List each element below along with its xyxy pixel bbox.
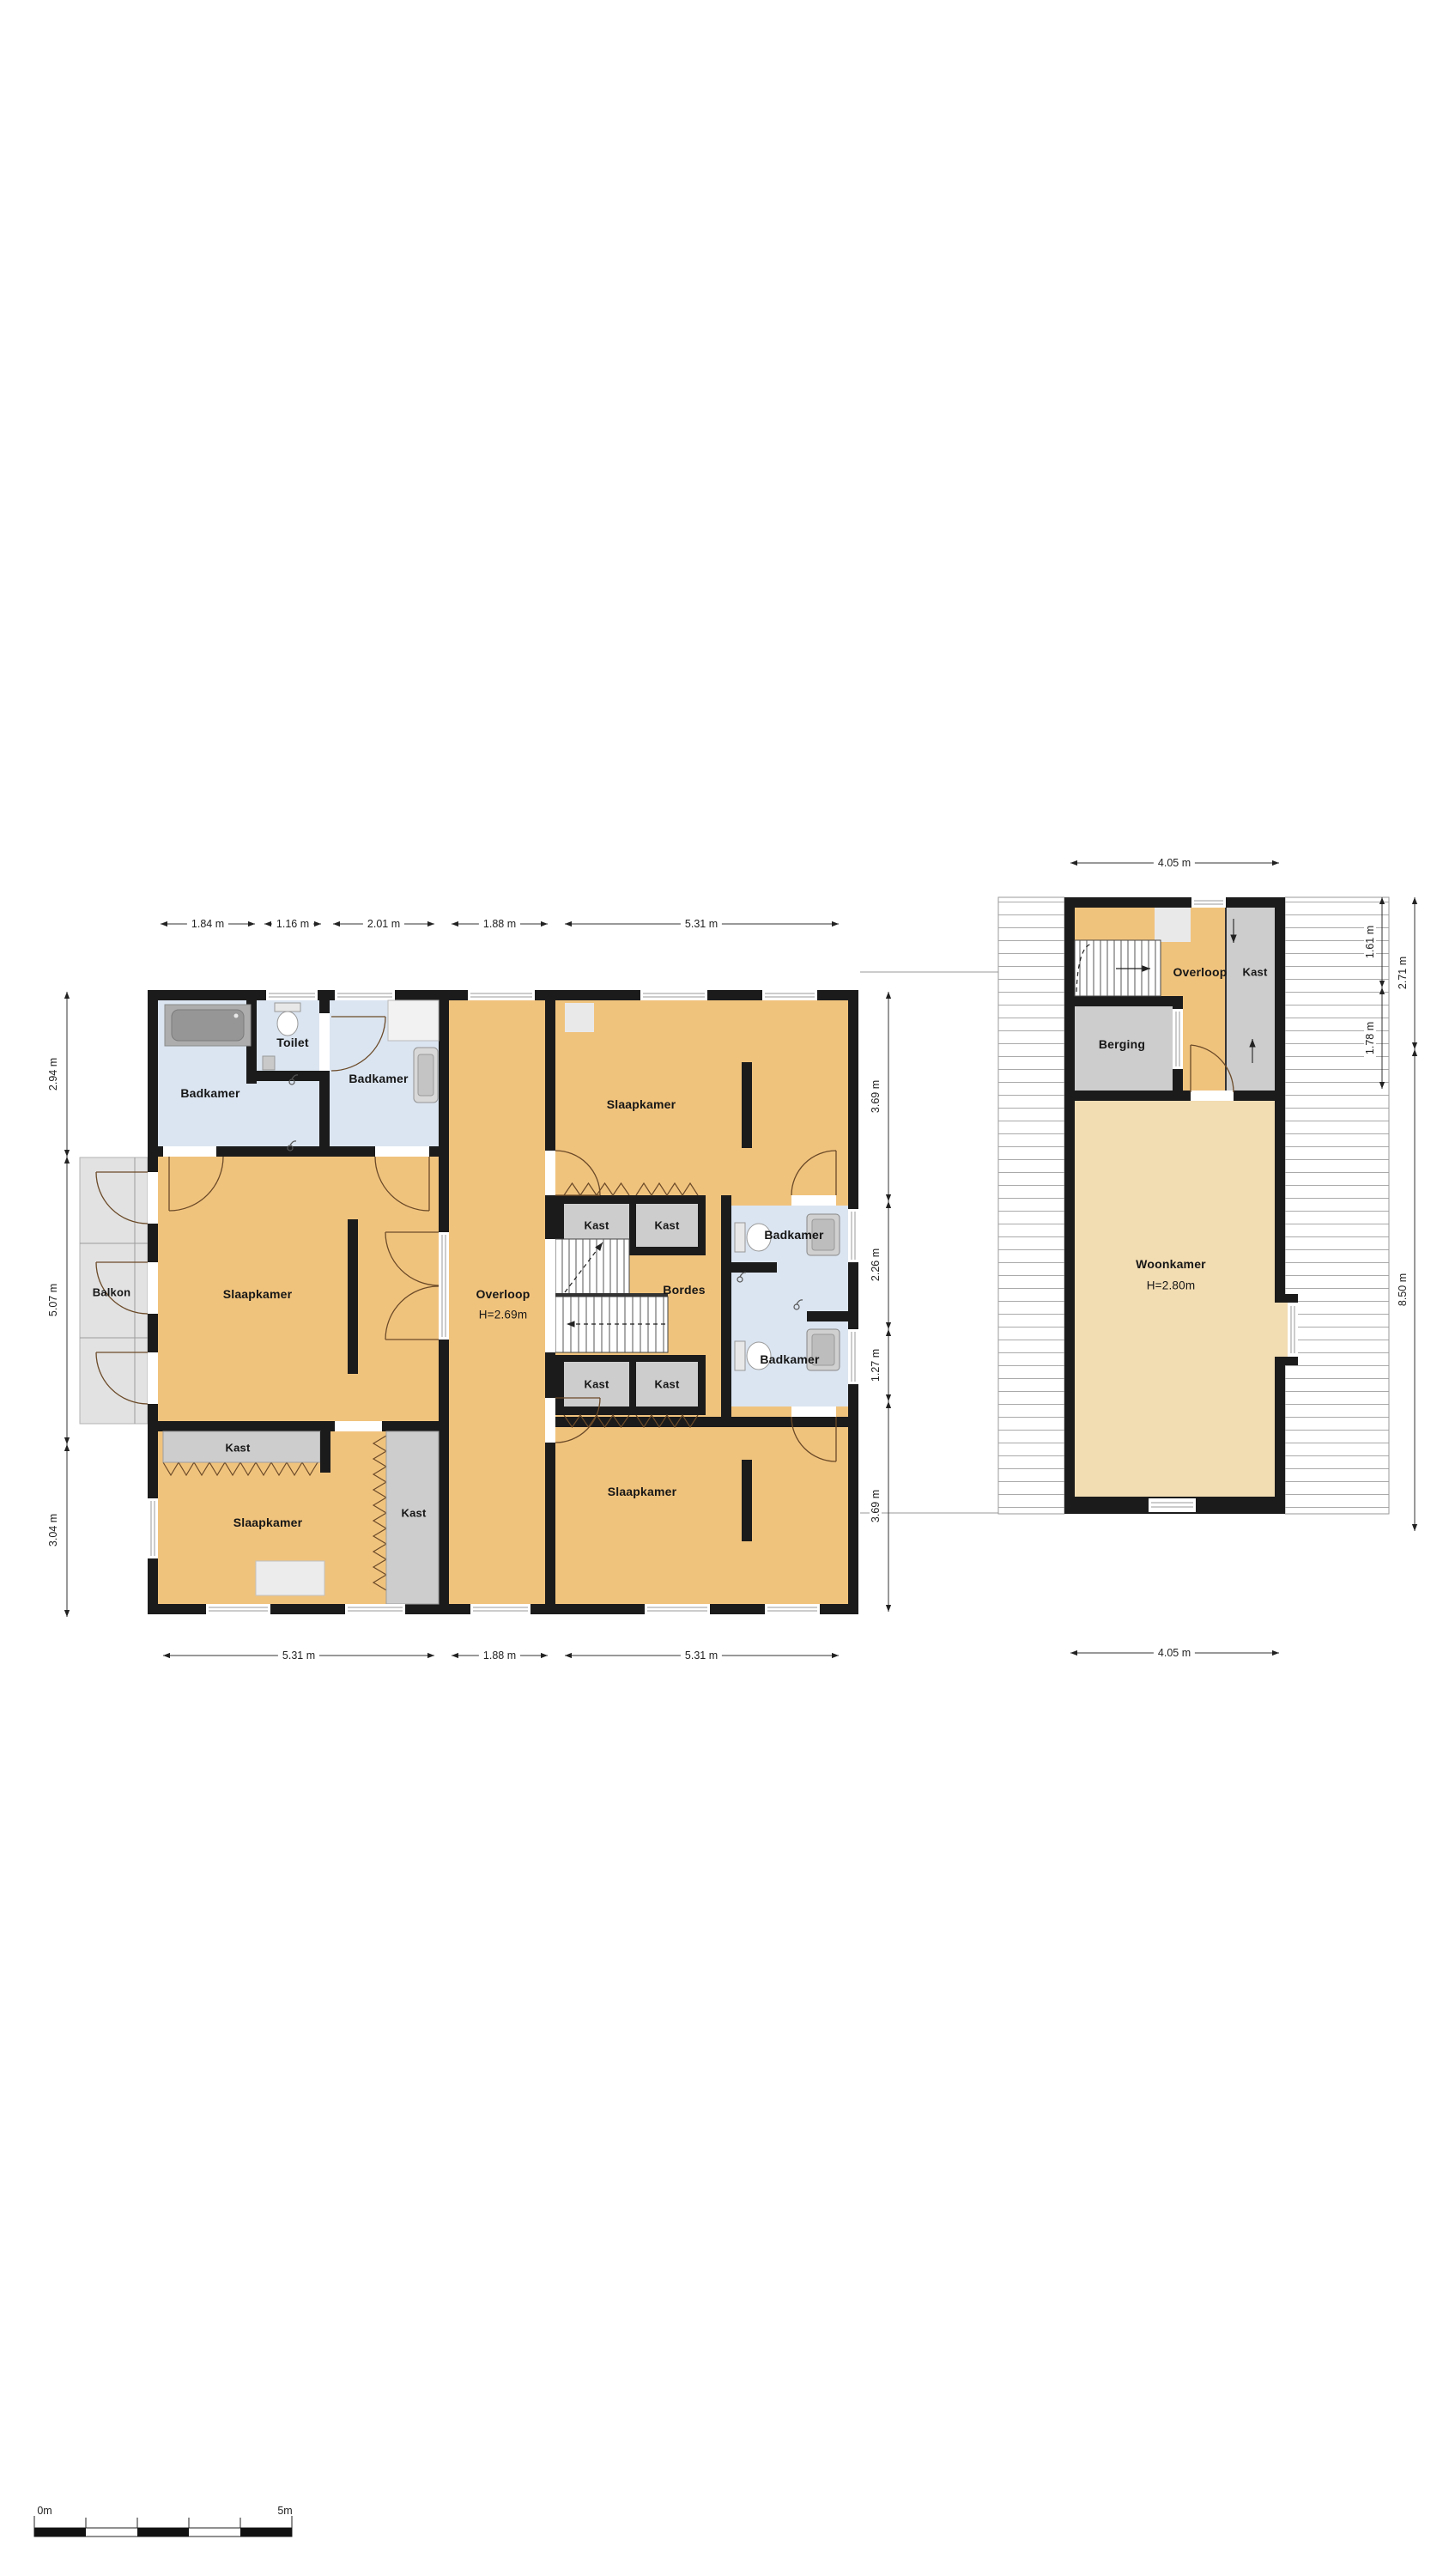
room-label-badkamer-nw: Badkamer — [180, 1086, 239, 1100]
closet-label-v: Kast — [402, 1507, 427, 1520]
dim-left-3: 3.04 m — [47, 1510, 59, 1550]
room-label-badkamer-n: Badkamer — [349, 1072, 408, 1085]
shower-tray — [388, 1000, 439, 1041]
closet-label-nw: Kast — [585, 1219, 609, 1232]
sink-badkamer-n — [414, 1048, 438, 1103]
dim-top-4: 1.88 m — [479, 918, 520, 930]
closet-label-se: Kast — [655, 1378, 680, 1391]
dim-f2-bottom: 4.05 m — [1154, 1647, 1195, 1659]
roof-hatch-left — [998, 897, 1064, 1514]
roof-hatch-right — [1285, 897, 1389, 1514]
room-label-slaapkamer-ne: Slaapkamer — [607, 1097, 676, 1111]
room-label-overloop-f2: Overloop — [1173, 965, 1227, 979]
room-label-badkamer-e2: Badkamer — [760, 1352, 819, 1366]
shaft-square — [565, 1003, 594, 1032]
dim-left-1: 2.94 m — [47, 1054, 59, 1094]
room-slaapkamer-w — [158, 1157, 439, 1421]
closet-label-h: Kast — [226, 1442, 251, 1455]
closet-label-ne: Kast — [655, 1219, 680, 1232]
dim-right-2: 2.26 m — [870, 1245, 882, 1285]
scalebar-start-label: 0m — [33, 2505, 56, 2517]
dim-top-3: 2.01 m — [363, 918, 404, 930]
room-label-overloop: Overloop — [476, 1287, 530, 1301]
stairs-second-floor — [1075, 940, 1161, 996]
dim-left-2: 5.07 m — [47, 1280, 59, 1320]
dim-top-2: 1.16 m — [272, 918, 313, 930]
dormer — [1275, 1294, 1298, 1365]
room-label-slaapkamer-sw: Slaapkamer — [233, 1516, 303, 1529]
dim-right-4: 3.69 m — [870, 1486, 882, 1526]
room-label-woonkamer: Woonkamer — [1136, 1257, 1206, 1271]
room-slaapkamer-se — [555, 1427, 848, 1604]
bathtub — [165, 1005, 251, 1046]
second-floor-plan — [998, 897, 1389, 1514]
scale-bar — [34, 2516, 292, 2537]
room-label-overloop-height: H=2.69m — [479, 1309, 528, 1321]
dim-bottom-3: 5.31 m — [681, 1649, 722, 1662]
roof-reference-lines — [860, 972, 998, 1513]
floorplan-drawing — [0, 0, 1449, 2576]
room-label-slaapkamer-w: Slaapkamer — [223, 1287, 293, 1301]
dim-f2-outer-1: 2.71 m — [1397, 953, 1409, 993]
dim-top-5: 5.31 m — [681, 918, 722, 930]
dim-bottom-1: 5.31 m — [278, 1649, 319, 1662]
room-label-balkon: Balkon — [93, 1286, 131, 1299]
room-slaapkamer-ne — [555, 1000, 848, 1195]
room-label-kast-f2: Kast — [1243, 966, 1268, 979]
room-label-badkamer-e1: Badkamer — [764, 1228, 823, 1242]
scalebar-end-label: 5m — [273, 2505, 296, 2517]
room-overloop — [449, 1000, 545, 1604]
room-woonkamer — [1075, 1101, 1275, 1497]
first-floor-plan — [80, 972, 998, 1614]
shaft-square-f2 — [1155, 908, 1191, 942]
dim-f2-top: 4.05 m — [1154, 857, 1195, 869]
closet-label-sw: Kast — [585, 1378, 609, 1391]
dim-top-1: 1.84 m — [187, 918, 228, 930]
floorplan-page: Badkamer Toilet Badkamer Slaapkamer Balk… — [0, 0, 1449, 2576]
dim-bottom-2: 1.88 m — [479, 1649, 520, 1662]
dim-f2-inner-1: 1.61 m — [1364, 922, 1376, 962]
room-label-woonkamer-height: H=2.80m — [1147, 1279, 1196, 1292]
sink-small — [263, 1056, 275, 1070]
dim-f2-outer-2: 8.50 m — [1397, 1270, 1409, 1309]
dim-f2-inner-2: 1.78 m — [1364, 1018, 1376, 1058]
room-label-slaapkamer-se: Slaapkamer — [608, 1485, 677, 1498]
dim-right-3: 1.27 m — [870, 1346, 882, 1385]
room-label-bordes: Bordes — [663, 1283, 705, 1297]
room-label-berging: Berging — [1099, 1037, 1145, 1051]
room-label-toilet: Toilet — [276, 1036, 309, 1049]
dim-right-1: 3.69 m — [870, 1077, 882, 1116]
